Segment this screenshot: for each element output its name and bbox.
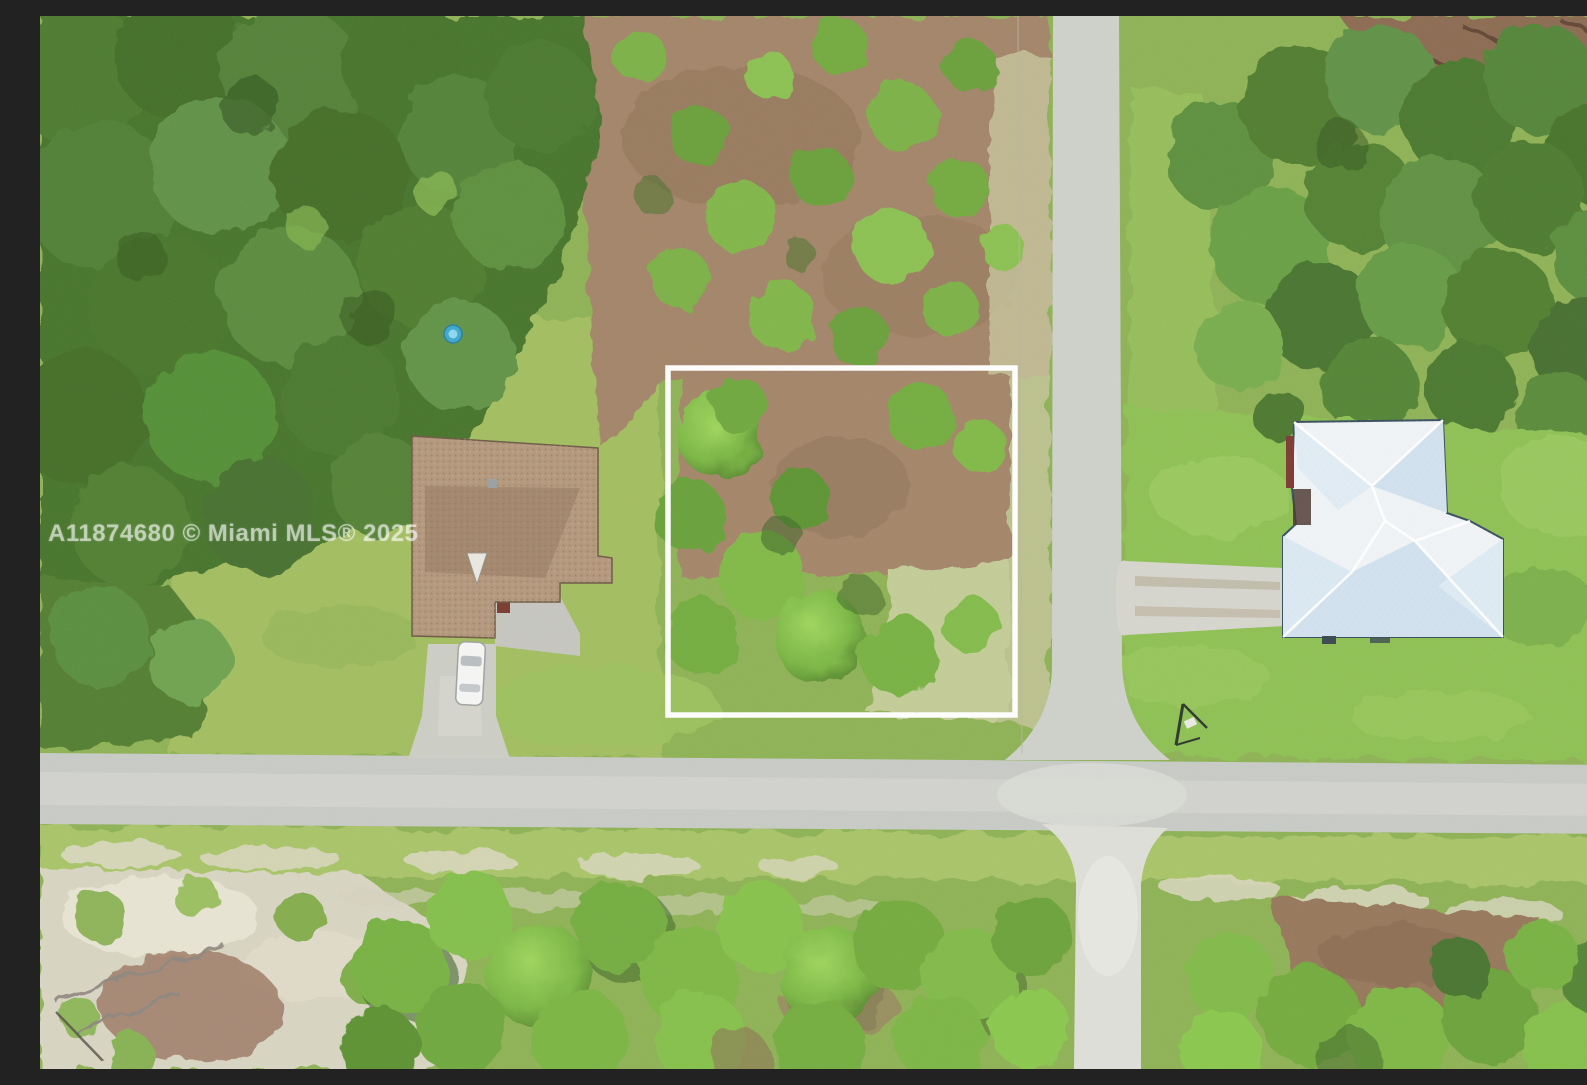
- aerial-photo: A11874680 © Miami MLS® 2025: [40, 16, 1587, 1069]
- aerial-scene: [40, 16, 1587, 1069]
- photo-grain: [40, 16, 1587, 1069]
